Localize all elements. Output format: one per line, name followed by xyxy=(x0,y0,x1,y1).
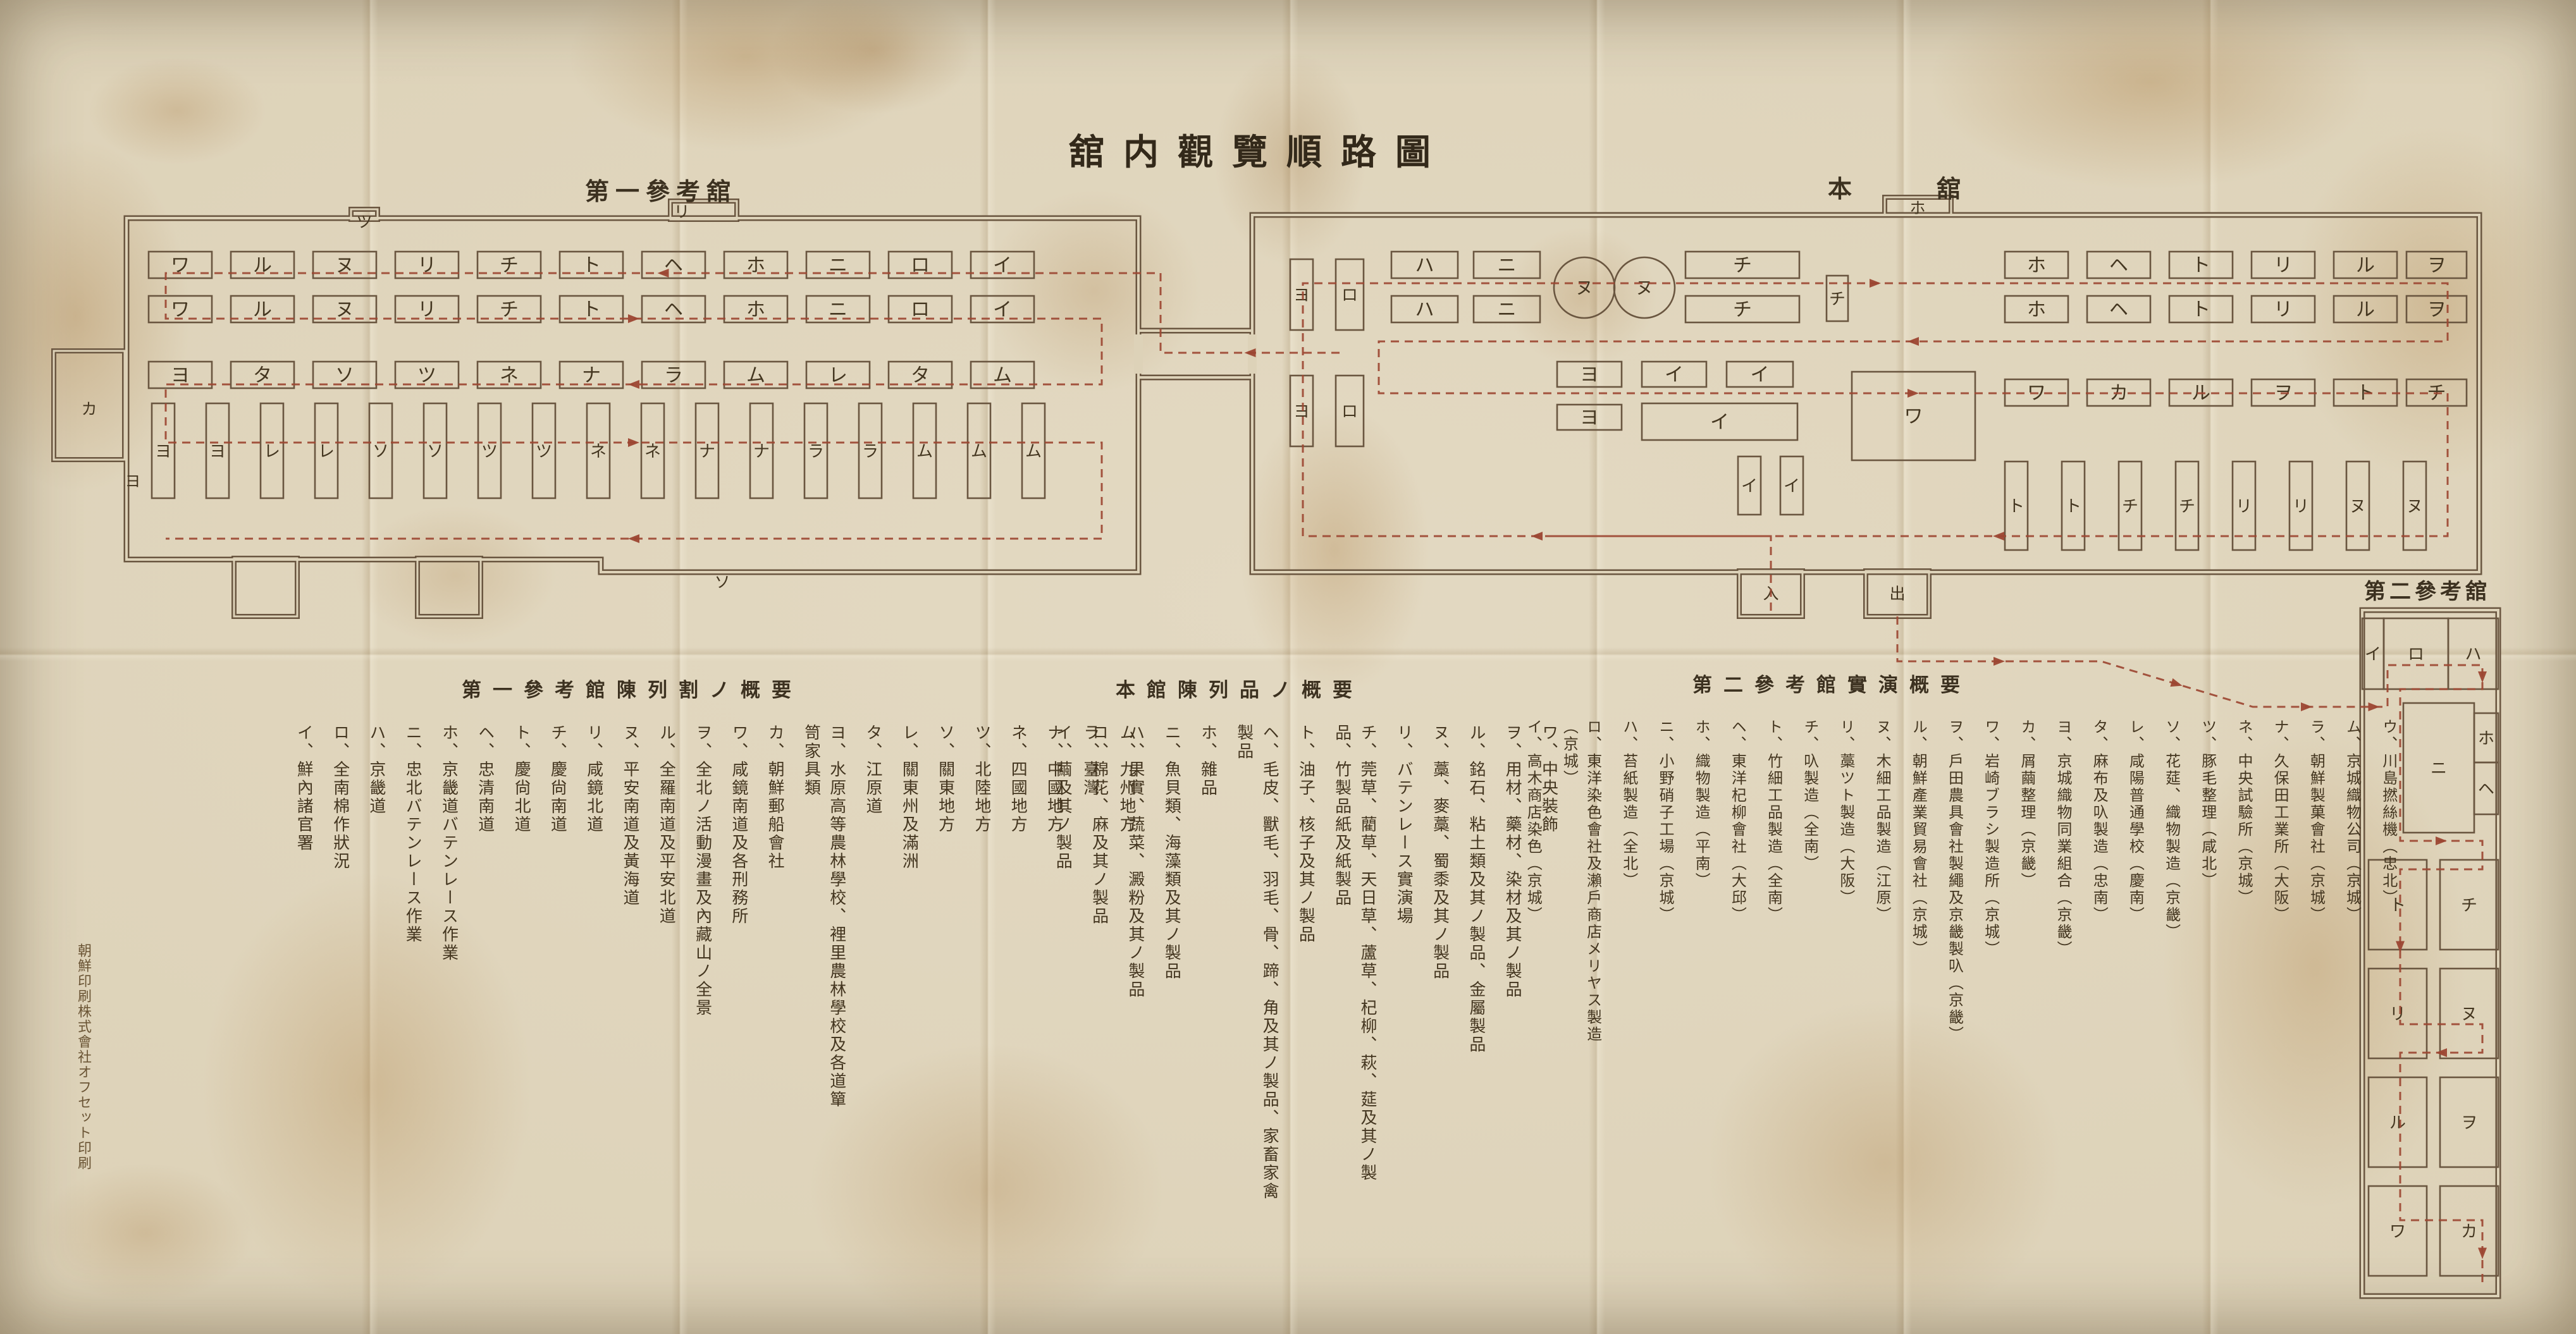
wall-label: カ xyxy=(81,401,97,419)
booth-label: ナ xyxy=(582,365,601,386)
wall-label: ヨ xyxy=(125,474,140,491)
first-reference-hall-label: 第一參考舘 xyxy=(585,172,737,207)
scanned-map-document: ワルヌリチトヘホニロイワルヌリチトヘホニロイヨタソツネナラムレタムヨヨレレソソツ… xyxy=(0,0,2576,1334)
booth-label: チ xyxy=(500,300,519,321)
booth-label: チ xyxy=(2461,896,2477,915)
legend-item: ヘ、毛皮、獸毛、羽毛、骨、蹄、角及其ノ製品、家畜家禽製品 xyxy=(1231,724,1282,1217)
route-arrow xyxy=(628,314,639,323)
hall-wall xyxy=(126,218,1138,572)
booth-label: ト xyxy=(2008,498,2024,516)
booth-label: ナ xyxy=(753,443,770,461)
visitor-route xyxy=(1303,283,2448,611)
booth-label: ム xyxy=(746,365,765,386)
booth-label: ヘ xyxy=(664,300,683,321)
legend-item: チ、莞草、藺草、天日草、蘆草、杞柳、萩、莚及其ノ製品、竹製品紙及紙製品 xyxy=(1329,724,1380,1217)
booth-label: リ xyxy=(2293,498,2309,516)
legend-item: ニ、小野硝子工場（京城） xyxy=(1653,719,1676,1073)
booth-label: ヨ xyxy=(155,443,171,461)
booth-label: イ xyxy=(1710,412,1729,433)
hall-wall-bump xyxy=(417,558,481,616)
wall-label: ツ xyxy=(356,214,372,231)
booth-label: ホ xyxy=(2027,255,2046,276)
booth-label: ソ xyxy=(373,443,389,461)
booth-label: イ xyxy=(1751,365,1770,386)
legend-item: ロ、全南棉作狀況 xyxy=(327,724,352,1116)
booth-label: ホ xyxy=(746,300,765,321)
booth-label: ロ xyxy=(2408,646,2424,664)
legend-item: リ、藁ツト製造（大阪） xyxy=(1833,719,1857,1073)
booth-label: タ xyxy=(911,365,930,386)
booth-label: チ xyxy=(2179,498,2195,516)
booth-label: ヌ xyxy=(1636,279,1653,298)
booth-label: ナ xyxy=(699,443,715,461)
booth-label: レ xyxy=(829,365,847,386)
booth-label: ヌ xyxy=(2461,1005,2477,1024)
booth-label: ロ xyxy=(911,300,930,321)
legend-item: ヌ、平安南道及黃海道 xyxy=(617,724,643,1116)
legend-item: ロ、東洋染色會社及瀨戶商店メリヤス製造（京城） xyxy=(1556,719,1603,1073)
legend-item: ル、全羅南道及平安北道 xyxy=(653,724,679,1116)
legend-item: イ、高木商店染色（京城） xyxy=(1520,719,1544,1073)
main-hall-legend: 本館陳列品ノ概要イ、繭及其ノ製品ロ、棉花、麻及其ノ製品ハ、果實、蔬菜、澱粉及其ノ… xyxy=(1050,674,1572,1217)
wall-label: 出 xyxy=(1889,585,1905,603)
booth-label: イ xyxy=(1784,477,1800,496)
booth-label: ネ xyxy=(644,443,661,461)
booth-label: ラ xyxy=(664,365,683,386)
booth-label: ヨ xyxy=(171,365,190,386)
legend-item: タ、江原道 xyxy=(860,724,885,1116)
legend-item: レ、咸陽普通學校（慶南） xyxy=(2123,719,2146,1073)
booth-label: リ xyxy=(417,300,436,321)
booth-label: ワ xyxy=(1904,407,1923,427)
booth-label: ワ xyxy=(2389,1223,2406,1241)
booth-label: ル xyxy=(2389,1114,2406,1132)
legend-item: ナ、久保田工業所（大阪） xyxy=(2267,719,2291,1073)
legend-item: ハ、京畿道 xyxy=(364,724,389,1116)
legend-item: ヌ、木細工品製造（江原） xyxy=(1870,719,1893,1073)
route-arrow xyxy=(1994,657,2005,666)
route-arrow xyxy=(628,380,639,389)
legend-item: ニ、魚貝類、海藻類及其ノ製品 xyxy=(1159,724,1184,1217)
booth-label: ロ xyxy=(1341,403,1358,421)
legend-item: イ、鮮內諸官署 xyxy=(291,724,316,1116)
second-reference-hall-legend: 第二參考館實演概要イ、高木商店染色（京城）ロ、東洋染色會社及瀨戶商店メリヤス製造… xyxy=(1520,669,2412,1073)
booth-label: ラ xyxy=(808,443,824,461)
second-reference-hall-label: 第二參考舘 xyxy=(2364,574,2491,605)
legend-item: リ、バテンレース實演場 xyxy=(1391,724,1416,1217)
booth-label: ヲ xyxy=(2427,300,2446,321)
legend-item: リ、咸鏡北道 xyxy=(581,724,606,1116)
booth-label: ハ xyxy=(1415,255,1434,276)
wall-label: ソ xyxy=(714,575,730,592)
route-arrow xyxy=(2478,671,2487,683)
booth-label: チ xyxy=(1733,300,1752,321)
booth-label: リ xyxy=(2274,255,2293,276)
legend-item: ワ、咸鏡南道及各刑務所 xyxy=(726,724,751,1116)
booth-label: イ xyxy=(2365,646,2381,664)
legend-item: イ、繭及其ノ製品 xyxy=(1050,724,1075,1217)
route-arrow xyxy=(628,438,639,447)
legend-item: ト、竹細工品製造（全南） xyxy=(1761,719,1784,1073)
booth-label: ム xyxy=(916,443,933,461)
legend-item: チ、叺製造（全南） xyxy=(1797,719,1821,1073)
booth-label: ヌ xyxy=(2407,498,2423,516)
route-arrow xyxy=(1531,532,1543,541)
list-heading: 本館陳列品ノ概要 xyxy=(1116,674,1572,702)
booth-label: ヌ xyxy=(2350,498,2366,516)
legend-item: ル、朝鮮產業貿易會社（京城） xyxy=(1906,719,1929,1073)
route-arrow xyxy=(1993,532,2004,541)
booth-label: ト xyxy=(2191,255,2210,276)
main-hall-label: 本 舘 xyxy=(1828,169,1991,204)
booth-label: ヨ xyxy=(1293,403,1310,421)
booth-label: ソ xyxy=(335,365,354,386)
legend-item: ネ、四國地方 xyxy=(1005,724,1030,1116)
legend-item: ヘ、東洋杞柳會社（大邱） xyxy=(1725,719,1748,1073)
legend-item: ト、油子、核子及其ノ製品 xyxy=(1293,724,1318,1217)
booth-label: ラ xyxy=(862,443,878,461)
list-heading: 第二參考館實演概要 xyxy=(1692,669,2412,697)
booth-label: ヲ xyxy=(2427,255,2446,276)
booth-label: ヨ xyxy=(209,443,226,461)
booth-label: チ xyxy=(1829,290,1846,309)
first-reference-hall-legend: 第一參考館陳列割ノ概要イ、鮮內諸官署ロ、全南棉作狀況ハ、京畿道ニ、忠北バテンレー… xyxy=(291,674,1150,1116)
booth-label: ネ xyxy=(500,365,519,386)
booth-label: ヘ xyxy=(2109,255,2128,276)
booth-label: チ xyxy=(1733,255,1752,276)
legend-item: ト、慶尙北道 xyxy=(508,724,534,1116)
legend-item: ロ、棉花、麻及其ノ製品 xyxy=(1086,724,1111,1217)
legend-item: ニ、忠北バテンレース作業 xyxy=(400,724,425,1116)
legend-item: カ、屑繭整理（京畿） xyxy=(2014,719,2038,1073)
booth-label: ニ xyxy=(829,300,847,321)
legend-item: ツ、豚毛整理（咸北） xyxy=(2195,719,2219,1073)
route-arrow xyxy=(2436,836,2447,845)
booth-label: ム xyxy=(1025,443,1042,461)
booth-label: ニ xyxy=(2431,759,2447,778)
legend-item: ハ、苔紙製造（全北） xyxy=(1617,719,1640,1073)
route-arrow xyxy=(1870,279,1881,288)
booth-label: ホ xyxy=(2027,300,2046,321)
booth-label: レ xyxy=(318,443,335,461)
booth-label: ム xyxy=(993,365,1012,386)
booth-label: ハ xyxy=(2465,646,2481,664)
page-title: 舘内觀覽順路圖 xyxy=(1069,124,1450,175)
legend-item: ヲ、全北ノ活動漫畫及內藏山ノ全景 xyxy=(689,724,715,1116)
legend-item: タ、麻布及叺製造（忠南） xyxy=(2086,719,2110,1073)
booth-label: ロ xyxy=(1341,286,1358,305)
booth-label: ト xyxy=(2065,498,2081,516)
booth-label: チ xyxy=(2122,498,2138,516)
legend-item: ヌ、藁、麥藁、蜀黍及其ノ製品 xyxy=(1427,724,1452,1217)
legend-item: ウ、川島撚絲機（忠北） xyxy=(2376,719,2400,1073)
legend-item: ハ、果實、蔬菜、澱粉及其ノ製品 xyxy=(1123,724,1148,1217)
booth-label: リ xyxy=(2236,498,2252,516)
legend-item: ソ、關東地方 xyxy=(932,724,958,1116)
hall-wall-bump xyxy=(417,558,481,616)
legend-item: ヨ、京城織物同業組合（京畿） xyxy=(2050,719,2074,1073)
legend-item: ム、京城織物公司（京城） xyxy=(2339,719,2363,1073)
booth-label: イ xyxy=(993,300,1012,321)
legend-item: ホ、織物製造（平南） xyxy=(1689,719,1712,1073)
legend-item: レ、關東州及滿洲 xyxy=(896,724,921,1116)
booth-label: ル xyxy=(253,300,272,321)
booth-label: ヘ xyxy=(2109,300,2128,321)
booth-label: イ xyxy=(1741,477,1758,496)
booth-label: ル xyxy=(2356,255,2375,276)
booth-label: ツ xyxy=(536,443,552,461)
booth-label: ソ xyxy=(427,443,443,461)
booth-label: タ xyxy=(253,365,272,386)
legend-item: ヨ、水原高等農林學校、裡里農林學校及各道簞笥家具類 xyxy=(798,724,849,1116)
legend-item: ル、銘石、粘土類及其ノ製品、金屬製品 xyxy=(1464,724,1489,1217)
booth-label: ト xyxy=(2191,300,2210,321)
list-heading: 第一參考館陳列割ノ概要 xyxy=(462,674,1150,702)
booth-label: ネ xyxy=(590,443,607,461)
booth-label: ヌ xyxy=(335,300,354,321)
booth-label: リ xyxy=(2274,300,2293,321)
booth-label: ニ xyxy=(1498,300,1517,321)
booth-label: ニ xyxy=(1498,255,1517,276)
booth-label: ル xyxy=(2356,300,2375,321)
booth-label: ヘ xyxy=(2478,780,2494,799)
booth-label: ツ xyxy=(481,443,498,461)
legend-item: チ、慶尙南道 xyxy=(545,724,570,1116)
legend-item: ソ、花莚、織物製造（京畿） xyxy=(2159,719,2182,1073)
booth-label: ム xyxy=(971,443,987,461)
hall-wall-bump xyxy=(234,558,297,616)
legend-item: ワ、岩崎ブラシ製造所（京城） xyxy=(1978,719,2001,1073)
route-arrow xyxy=(2436,1048,2447,1057)
route-arrow xyxy=(1907,389,1919,398)
route-arrow xyxy=(1907,337,1919,346)
booth-label: ホ xyxy=(2478,730,2494,748)
hall-wall-bump xyxy=(234,558,297,616)
legend-item: ヘ、忠清南道 xyxy=(472,724,497,1116)
route-arrow xyxy=(2478,1248,2487,1259)
route-arrow xyxy=(658,269,669,278)
booth-label: ヲ xyxy=(2461,1114,2477,1132)
booth-label: イ xyxy=(1665,365,1684,386)
legend-item: ツ、北陸地方 xyxy=(969,724,994,1116)
booth-label: ヌ xyxy=(1575,279,1593,298)
booth-label: ワ xyxy=(171,300,190,321)
booth-label: カ xyxy=(2461,1223,2477,1241)
route-arrow xyxy=(628,534,639,543)
legend-item: ホ、雜品 xyxy=(1195,724,1220,1217)
booth-label: ツ xyxy=(417,365,436,386)
legend-item: ホ、京畿道バテンレース作業 xyxy=(436,724,461,1116)
booth-label: ヨ xyxy=(1293,286,1310,305)
legend-item: ヲ、戶田農具會社製繩及京畿製叺（京畿） xyxy=(1942,719,1965,1073)
booth-label: レ xyxy=(264,443,280,461)
booth-label: ヨ xyxy=(1580,408,1599,429)
booth-label: ハ xyxy=(1415,300,1434,321)
legend-item: カ、朝鮮郵船會社 xyxy=(762,724,787,1116)
hall-wall xyxy=(126,218,1138,572)
legend-item: ラ、朝鮮製菓會社（京城） xyxy=(2303,719,2327,1073)
booth-label: ヨ xyxy=(1580,365,1599,386)
printer-credit: 朝鮮印刷株式會社オフセット印刷 xyxy=(73,943,94,1171)
booth-label: ト xyxy=(582,300,601,321)
legend-item: ネ、中央試驗所（京城） xyxy=(2231,719,2255,1073)
